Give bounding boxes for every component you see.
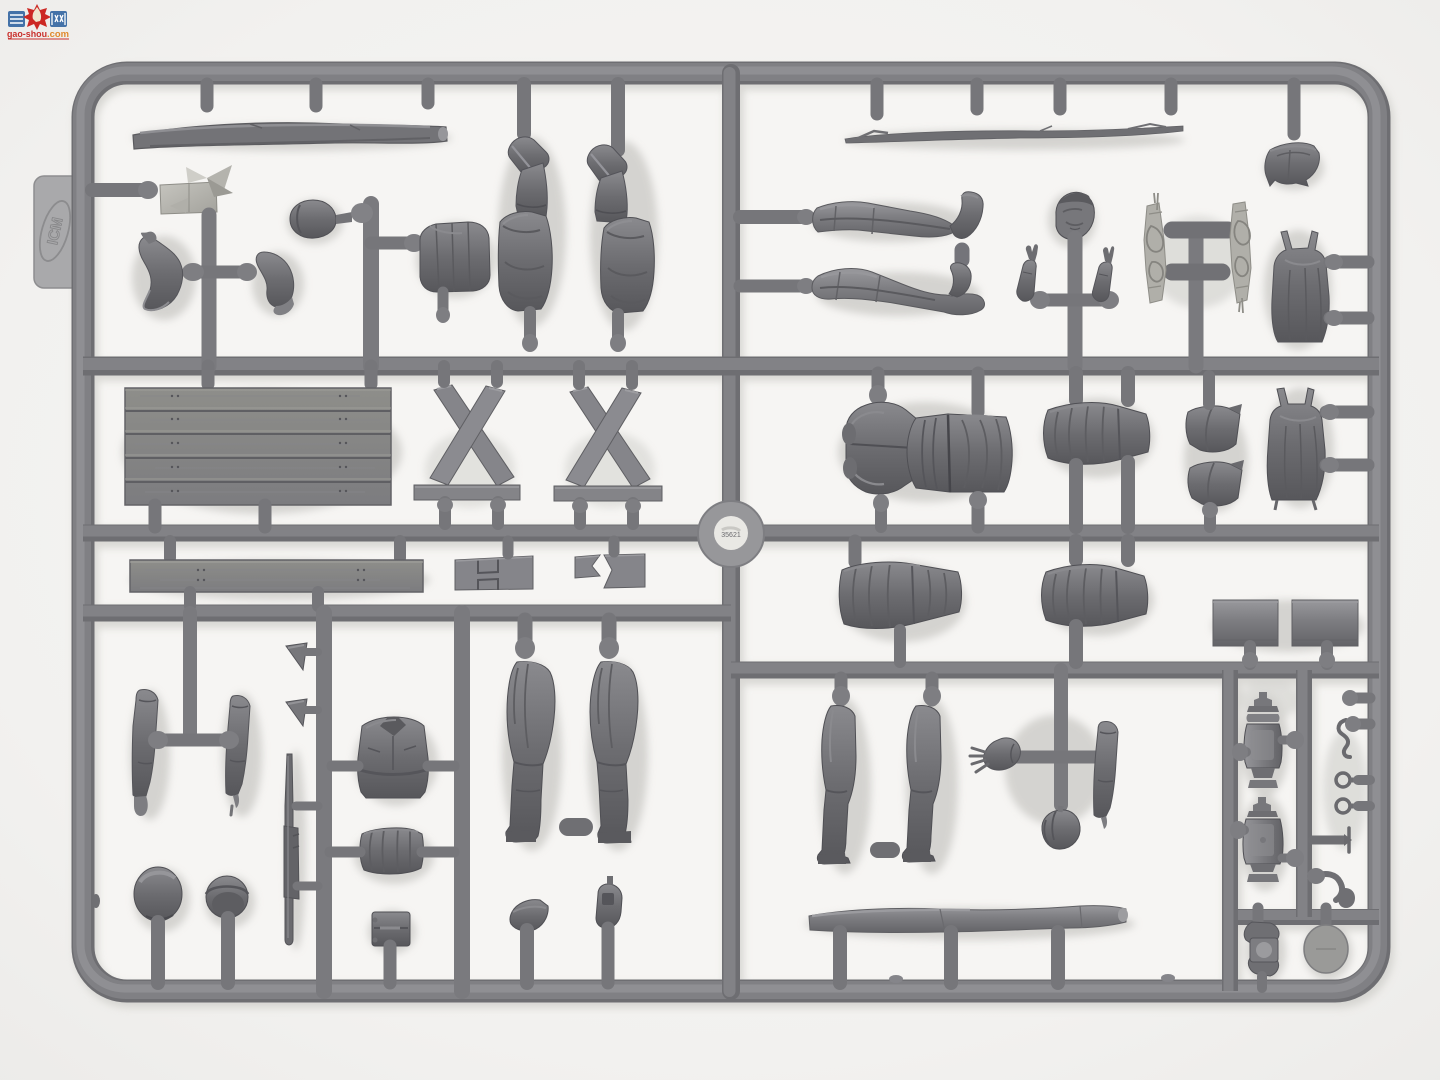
svg-text:gao-shou: gao-shou (7, 29, 47, 40)
svg-text:.com: .com (47, 29, 69, 40)
svg-text:35621: 35621 (721, 532, 741, 539)
